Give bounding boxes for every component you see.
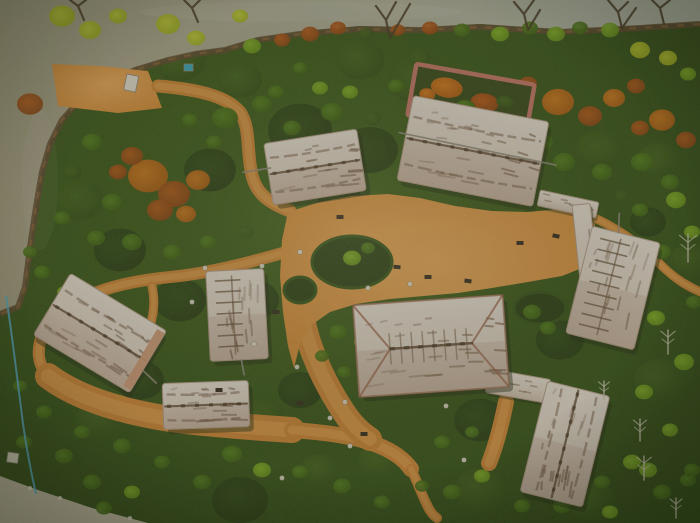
vignette	[0, 0, 700, 523]
aerial-photo	[0, 0, 700, 523]
aerial-photo-canvas	[0, 0, 700, 523]
